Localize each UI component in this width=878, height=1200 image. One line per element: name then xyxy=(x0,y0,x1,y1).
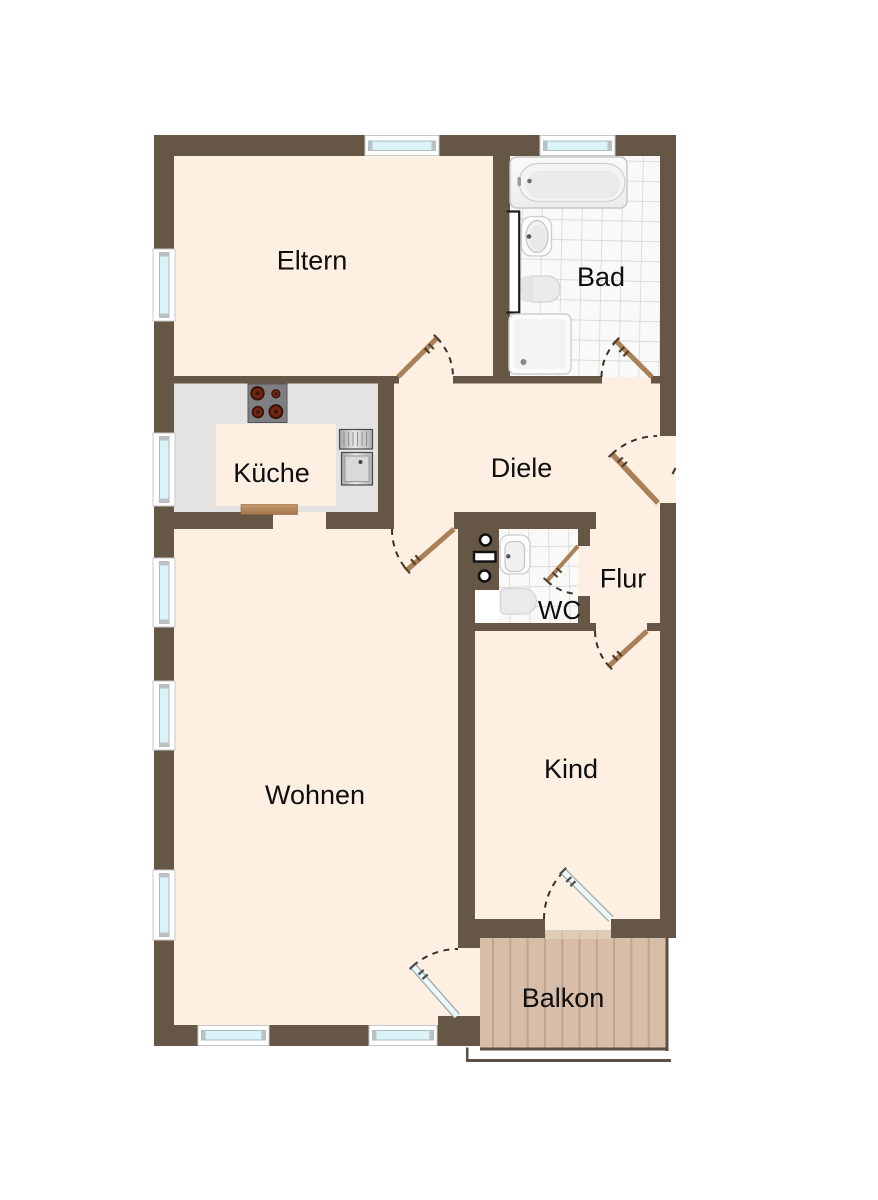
svg-text:Balkon: Balkon xyxy=(522,983,605,1013)
svg-text:Bad: Bad xyxy=(577,262,625,292)
svg-text:Wohnen: Wohnen xyxy=(265,780,365,810)
svg-text:Eltern: Eltern xyxy=(277,246,348,276)
svg-text:Kind: Kind xyxy=(544,754,598,784)
svg-text:Flur: Flur xyxy=(600,564,647,594)
svg-text:Küche: Küche xyxy=(233,458,310,488)
svg-text:WC: WC xyxy=(538,595,581,625)
svg-text:Diele: Diele xyxy=(491,453,553,483)
